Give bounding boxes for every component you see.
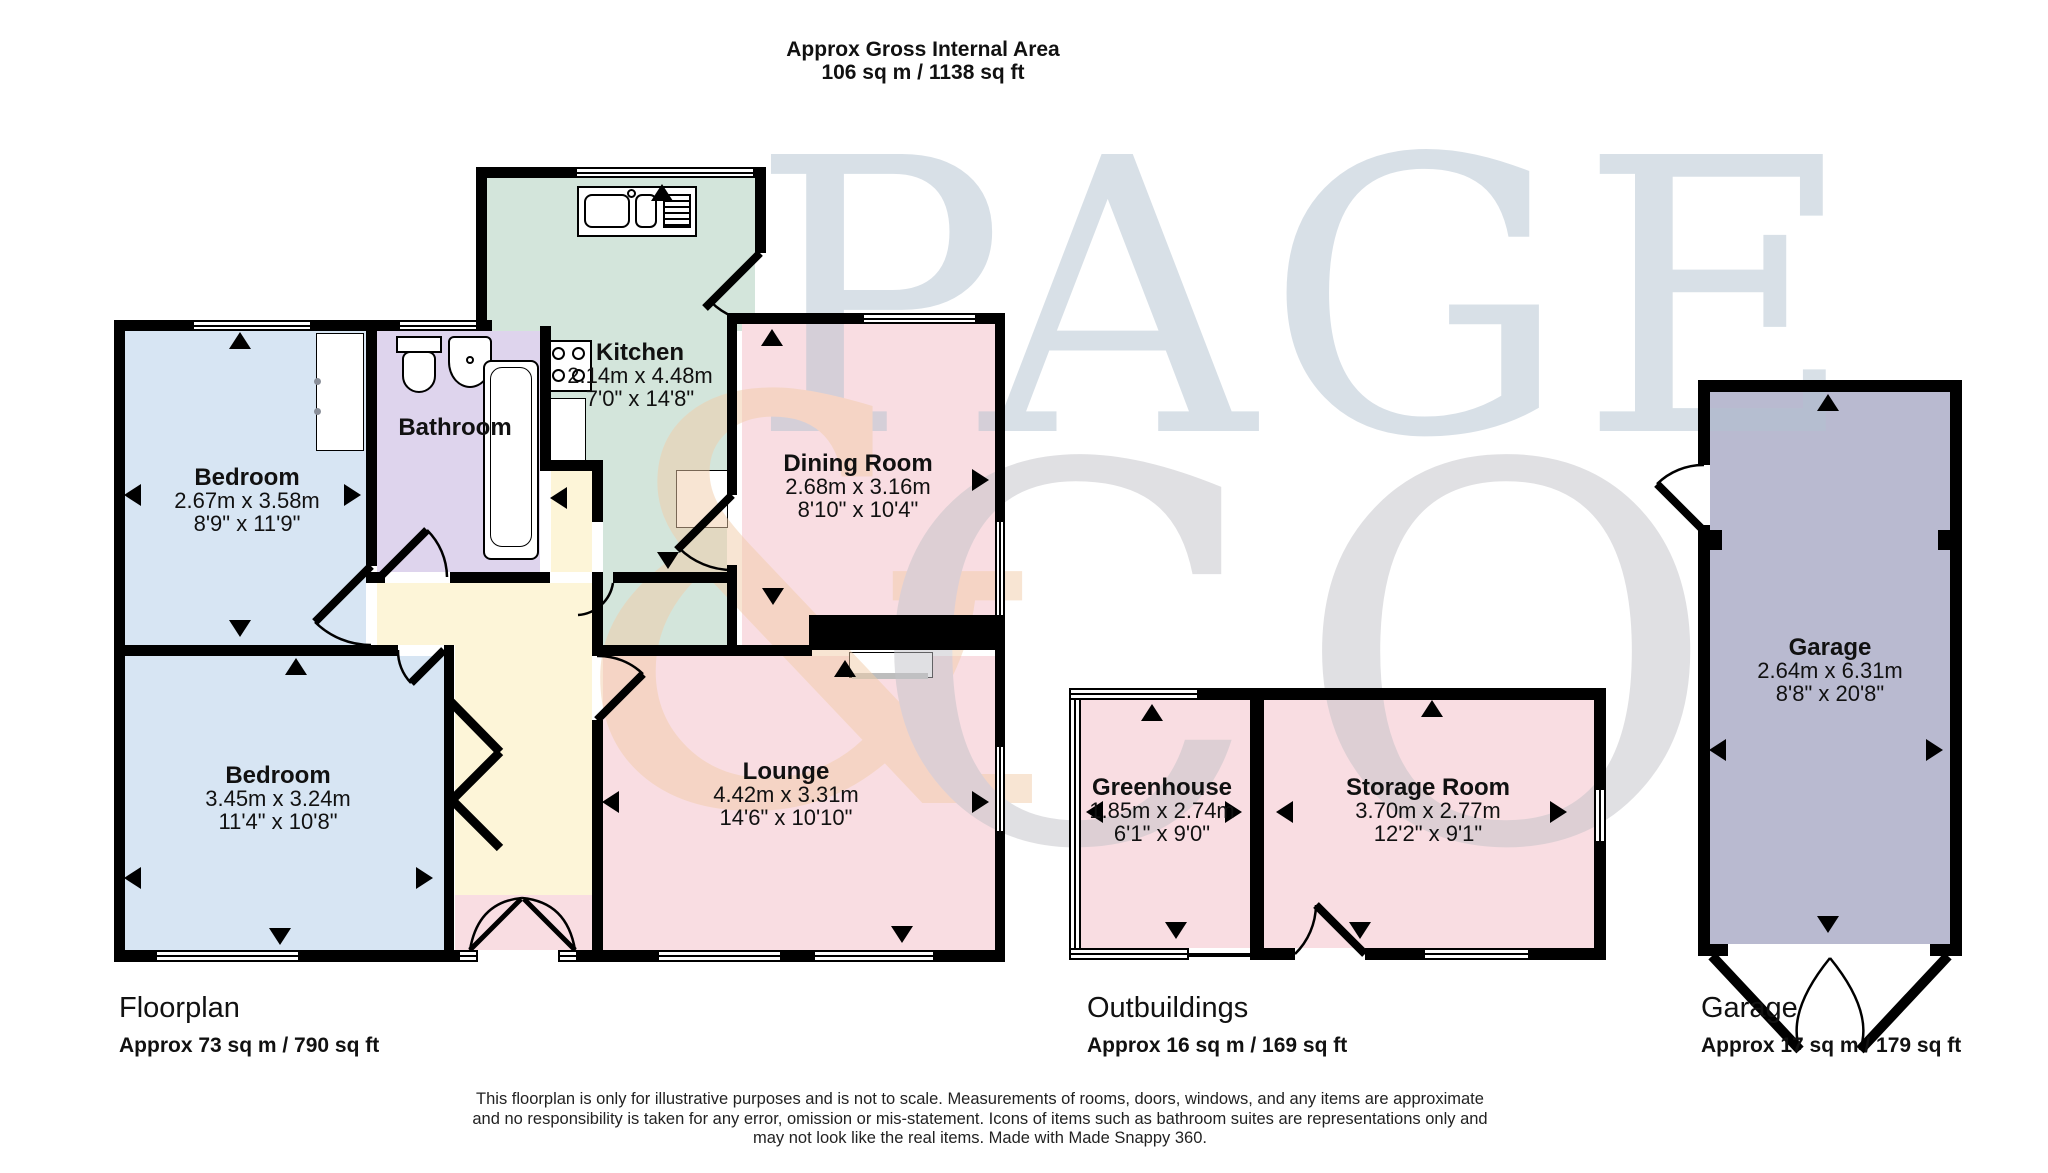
section-area: Approx 16 sq m / 169 sq ft [1087,1034,1347,1058]
wall-segment [592,645,812,656]
viewpoint-arrow-l [124,484,141,506]
room-metric: 4.42m x 3.31m [713,783,859,806]
room-label-greenhouse: Greenhouse 1.85m x 2.74m 6'1" x 9'0" [1089,776,1235,845]
wall-segment [592,950,657,962]
door-leaf [1657,484,1704,531]
wall-segment [578,950,592,962]
room-name: Greenhouse [1089,776,1235,799]
wall-segment [366,572,385,583]
viewpoint-arrow-u [834,660,856,677]
door-leaf [411,650,444,683]
viewpoint-arrow-d [1165,922,1187,939]
title-line-2: 106 sq m / 1138 sq ft [786,61,1059,84]
door-arc [315,622,371,645]
wall-segment [592,720,603,962]
wall-segment [114,320,125,962]
room-name: Kitchen [567,341,713,364]
window [995,745,1005,833]
window [862,313,977,324]
room-imperial: 7'0" x 14'8" [567,387,713,410]
disclaimer-line-3: may not look like the real items. Made w… [380,1129,1580,1149]
viewpoint-arrow-l [1709,739,1726,761]
wall-segment [444,645,454,962]
window [1069,688,1081,960]
room-label-kitchen: Kitchen 2.14m x 4.48m 7'0" x 14'8" [567,341,713,410]
wall-segment [613,572,727,583]
viewpoint-arrow-u [761,329,783,346]
wall-segment [1199,688,1250,700]
door-arc [398,650,411,683]
section-title: Floorplan [119,992,379,1025]
viewpoint-arrow-l [124,867,141,889]
door-leaf [315,566,371,622]
room-label-bedroom-2: Bedroom 3.45m x 3.24m 11'4" x 10'8" [205,764,351,833]
window [398,320,478,331]
section-title: Outbuildings [1087,992,1347,1025]
window [458,950,478,962]
viewpoint-arrow-l [1276,801,1293,823]
viewpoint-arrow-d [657,552,679,569]
door-leaf [677,495,732,550]
wall-segment [995,833,1005,962]
room-metric: 1.85m x 2.74m [1089,799,1235,822]
viewpoint-arrow-d [1349,922,1371,939]
window [575,167,755,178]
window [192,320,312,331]
wall-segment [114,645,398,656]
wall-segment [1930,944,1962,956]
room-metric: 2.67m x 3.58m [174,489,320,512]
room-imperial: 11'4" x 10'8" [205,810,351,833]
wall-segment [995,645,1005,745]
section-label-outbuildings: Outbuildings Approx 16 sq m / 169 sq ft [1087,992,1347,1058]
wall-segment [935,950,1005,962]
wall-segment [1698,380,1962,392]
wall-segment [732,313,862,324]
wall-segment [1260,948,1295,960]
window [995,520,1005,617]
room-imperial: 14'6" x 10'10" [713,806,859,829]
wall-segment [1710,530,1722,550]
wall-segment [476,167,575,178]
viewpoint-arrow-u [229,332,251,349]
viewpoint-arrow-d [229,620,251,637]
room-name: Storage Room [1346,776,1510,799]
wall-segment [1698,944,1728,956]
wall-segment [1594,688,1606,788]
window [813,950,935,962]
floorplan-canvas: PAGE & CO [0,0,2048,1173]
door-arc [1295,905,1316,954]
viewpoint-arrow-u [1817,394,1839,411]
door-leaf [705,253,760,308]
room-name: Dining Room [783,452,932,475]
wall-segment [114,950,155,962]
disclaimer-line-2: and no responsibility is taken for any e… [380,1110,1580,1130]
viewpoint-arrow-u [285,658,307,675]
room-name: Bedroom [174,466,320,489]
door-arc [597,656,643,674]
viewpoint-arrow-u [1141,704,1163,721]
viewpoint-arrow-r [1926,739,1943,761]
viewpoint-arrow-d [1817,916,1839,933]
room-name: Lounge [713,760,859,783]
room-label-bathroom: Bathroom [398,416,511,439]
viewpoint-arrow-r [972,469,989,491]
room-metric: 2.68m x 3.16m [783,475,932,498]
window [1594,788,1606,843]
viewpoint-arrow-r [972,791,989,813]
wall-segment [114,320,192,331]
viewpoint-arrow-r [344,484,361,506]
hall-wall [452,800,500,848]
room-label-garage: Garage 2.64m x 6.31m 8'8" x 20'8" [1757,636,1903,705]
viewpoint-arrow-u [651,184,673,201]
door-leaves [315,253,1704,954]
wall-segment [1189,953,1250,957]
viewpoint-arrow-u [1421,700,1443,717]
room-name: Garage [1757,636,1903,659]
disclaimer-line-1: This floorplan is only for illustrative … [380,1090,1580,1110]
window [657,950,782,962]
wall-segment [1938,530,1950,550]
window [558,950,578,962]
door-leaf [380,530,427,577]
window [155,950,300,962]
wall-segment [1250,688,1264,960]
wall-segment [809,615,1005,650]
wall-segment [1698,380,1710,465]
room-metric: 2.64m x 6.31m [1757,659,1903,682]
section-label-garage: Garage Approx 17 sq m / 179 sq ft [1701,992,1961,1058]
wall-segment [755,167,766,253]
wall-segment [727,313,737,495]
wall-segment [476,167,487,331]
window [1069,688,1199,700]
wall-segment [782,950,813,962]
wall-segment [300,950,455,962]
section-area: Approx 17 sq m / 179 sq ft [1701,1034,1961,1058]
wall-segment [995,313,1005,520]
room-label-dining-room: Dining Room 2.68m x 3.16m 8'10" x 10'4" [783,452,932,521]
wall-segment [727,565,737,656]
viewpoint-arrow-d [891,926,913,943]
door-arc [679,548,732,570]
wall-segment [1594,843,1606,960]
door-arc [427,530,447,577]
hall-wall [449,700,500,752]
viewpoint-arrow-l [602,791,619,813]
room-metric: 3.45m x 3.24m [205,787,351,810]
hall-wall [452,752,500,800]
door-arc [1657,465,1704,484]
wall-segment [1365,948,1423,960]
section-area: Approx 73 sq m / 790 sq ft [119,1034,379,1058]
hallway-zigzag-walls [449,700,500,848]
room-label-storage-room: Storage Room 3.70m x 2.77m 12'2" x 9'1" [1346,776,1510,845]
room-imperial: 8'10" x 10'4" [783,498,932,521]
viewpoint-arrow-r [1550,801,1567,823]
wall-segment [444,950,458,962]
window [1423,948,1530,960]
room-imperial: 6'1" x 9'0" [1089,822,1235,845]
viewpoint-arrow-d [269,928,291,945]
room-metric: 3.70m x 2.77m [1346,799,1510,822]
title-line-1: Approx Gross Internal Area [786,38,1059,61]
door-leaf [597,674,643,720]
window [1069,948,1189,960]
room-label-lounge: Lounge 4.42m x 3.31m 14'6" x 10'10" [713,760,859,829]
wall-segment [1250,688,1606,700]
room-label-bedroom-1: Bedroom 2.67m x 3.58m 8'9" x 11'9" [174,466,320,535]
room-imperial: 8'8" x 20'8" [1757,682,1903,705]
viewpoint-arrow-r [416,867,433,889]
viewpoint-arrow-l [550,487,567,509]
room-name: Bedroom [205,764,351,787]
wall-segment [540,326,551,471]
section-title: Garage [1701,992,1961,1025]
wall-segment [592,572,603,656]
viewpoint-arrow-d [762,588,784,605]
room-name: Bathroom [398,416,511,439]
wall-segment [450,572,550,583]
wall-segment [312,320,398,331]
room-imperial: 12'2" x 9'1" [1346,822,1510,845]
section-label-floorplan: Floorplan Approx 73 sq m / 790 sq ft [119,992,379,1058]
disclaimer: This floorplan is only for illustrative … [380,1090,1580,1149]
wall-segment [1530,948,1606,960]
room-imperial: 8'9" x 11'9" [174,512,320,535]
porch-door-leaves [470,899,575,950]
wall-segment [366,326,377,566]
wall-segment [592,460,603,522]
room-metric: 2.14m x 4.48m [567,364,713,387]
wall-segment [1950,380,1962,956]
page-title: Approx Gross Internal Area 106 sq m / 11… [786,38,1059,84]
